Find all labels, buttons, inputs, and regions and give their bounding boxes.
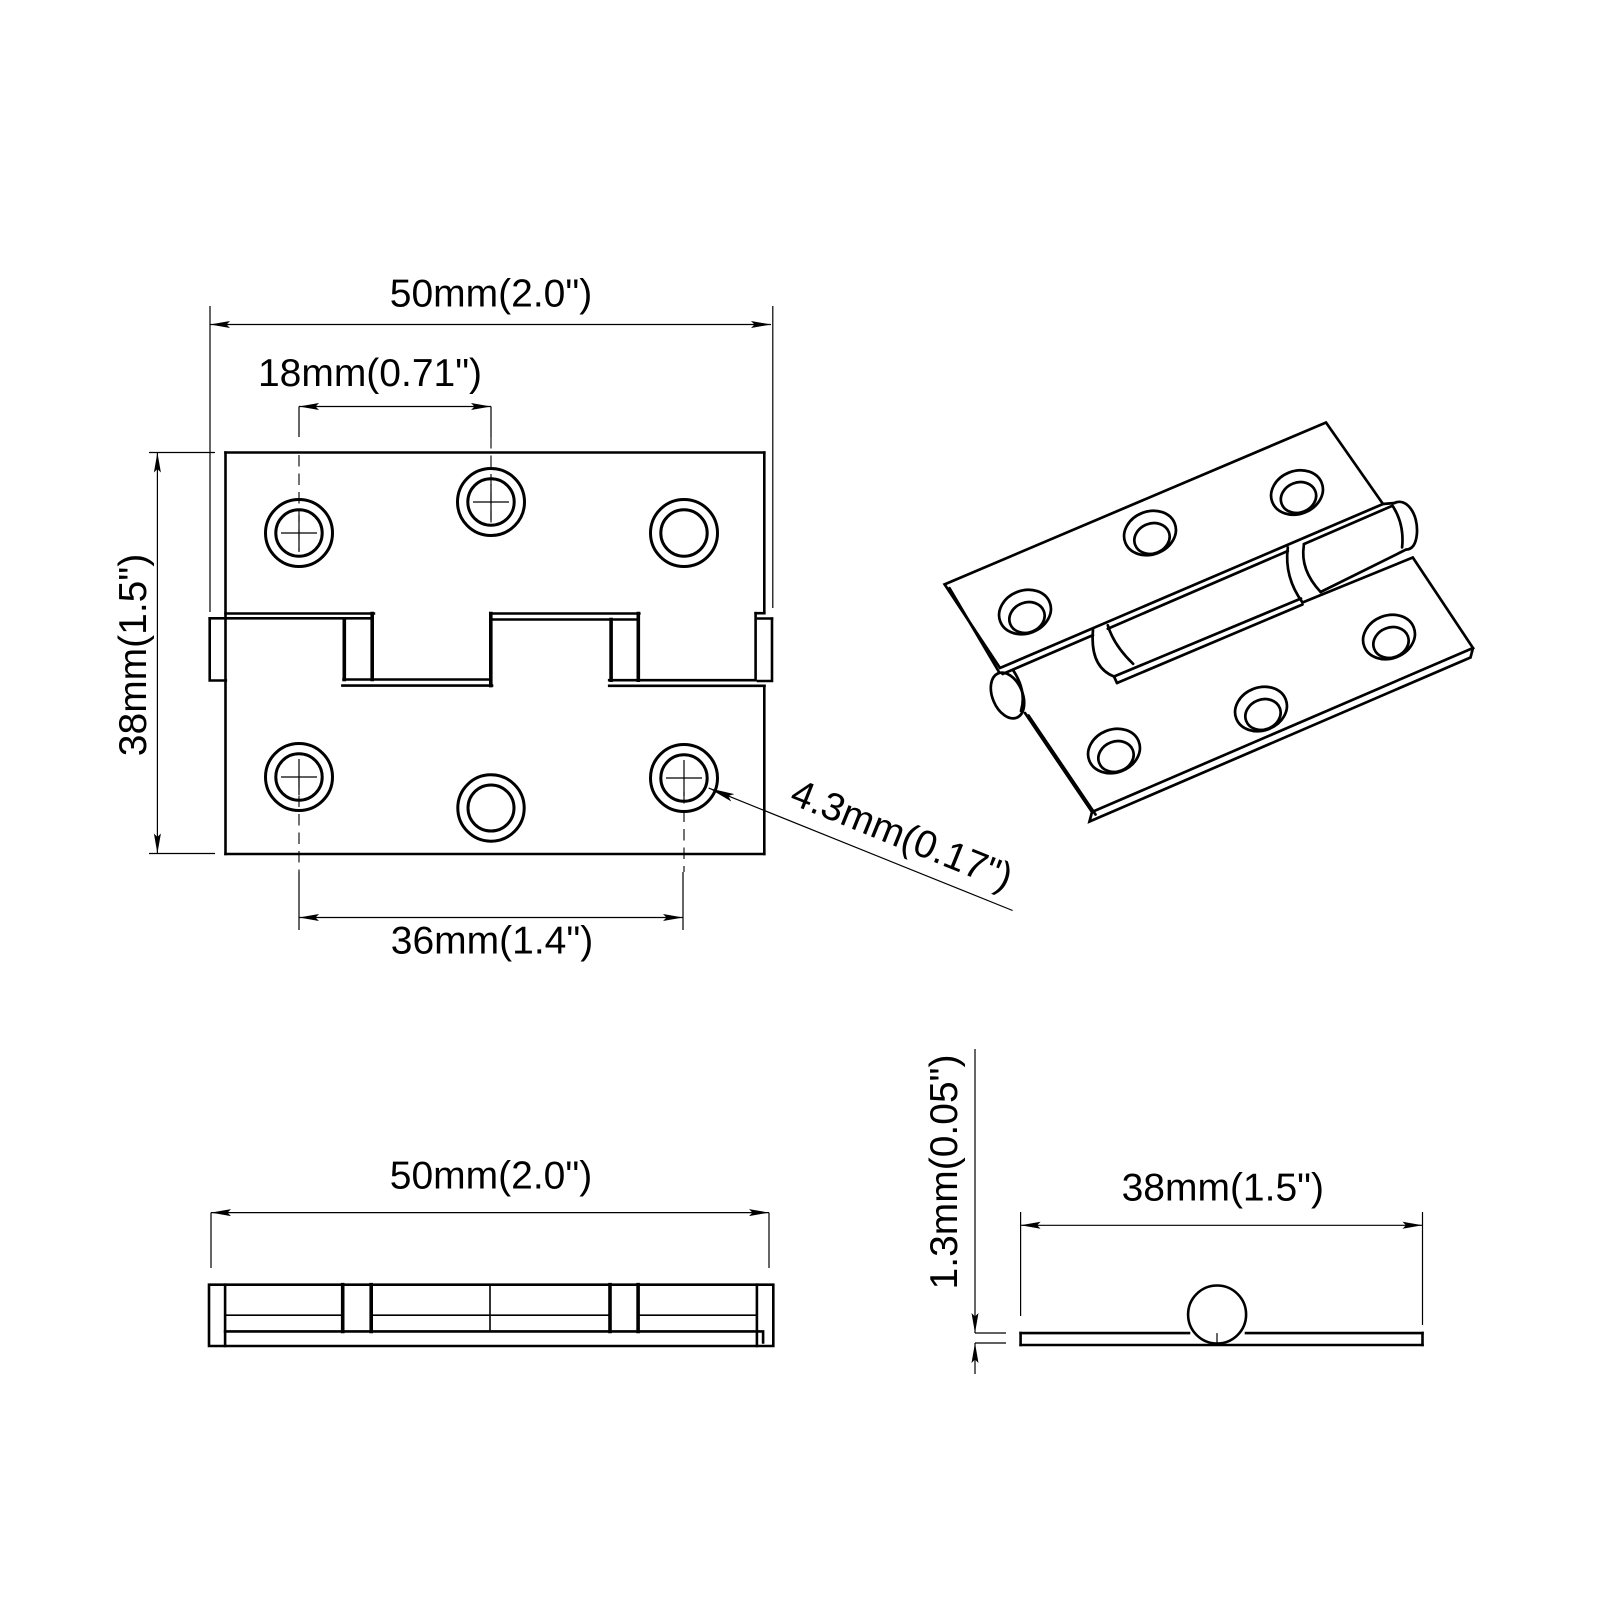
svg-text:38mm(1.5"): 38mm(1.5") <box>112 554 155 756</box>
svg-text:50mm(2.0"): 50mm(2.0") <box>390 1155 592 1198</box>
svg-text:1.3mm(0.05"): 1.3mm(0.05") <box>923 1055 966 1290</box>
svg-text:50mm(2.0"): 50mm(2.0") <box>390 272 592 315</box>
svg-text:38mm(1.5"): 38mm(1.5") <box>1122 1167 1324 1210</box>
svg-text:18mm(0.71"): 18mm(0.71") <box>258 352 482 395</box>
svg-text:36mm(1.4"): 36mm(1.4") <box>391 920 593 963</box>
